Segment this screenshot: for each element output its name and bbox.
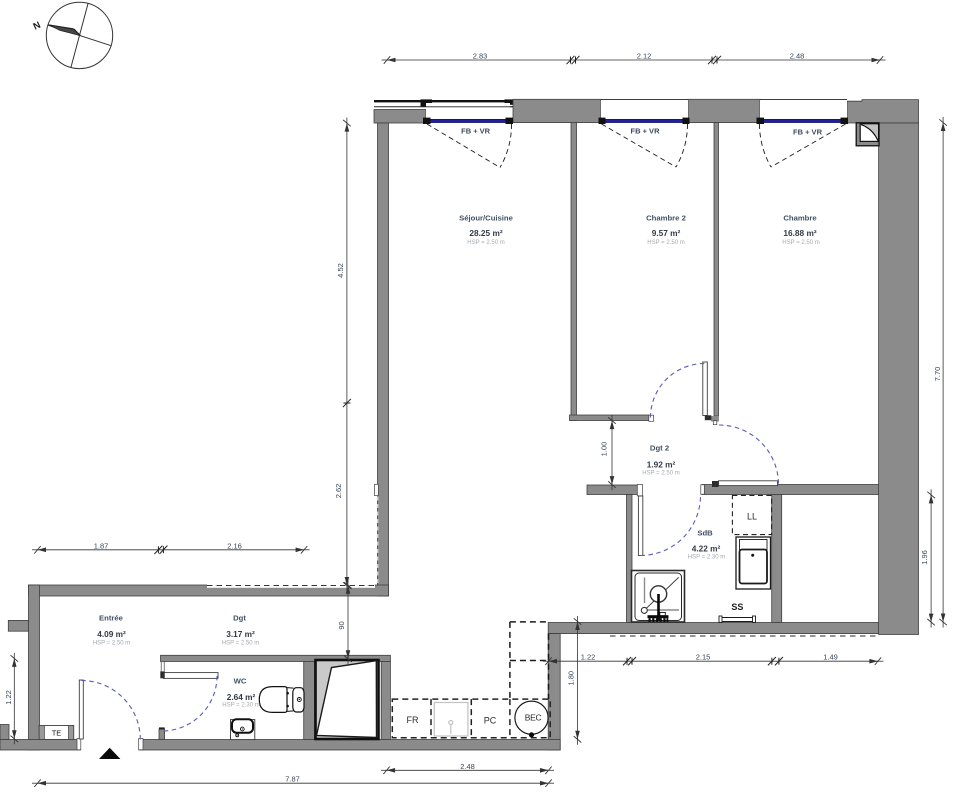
svg-text:Dgt: Dgt (233, 614, 246, 623)
svg-text:HSP = 2.50 m: HSP = 2.50 m (642, 471, 679, 477)
svg-text:LL: LL (747, 512, 757, 522)
svg-text:1.96: 1.96 (920, 550, 929, 565)
svg-text:4.09 m²: 4.09 m² (97, 629, 126, 639)
svg-text:TE: TE (52, 729, 62, 738)
svg-text:Entrée: Entrée (99, 614, 124, 623)
svg-text:FB + VR: FB + VR (793, 128, 823, 137)
svg-text:3.17 m²: 3.17 m² (226, 629, 255, 639)
svg-text:HSP = 2.50 m: HSP = 2.50 m (647, 240, 684, 246)
svg-text:HSP = 2.50 m: HSP = 2.50 m (222, 641, 259, 647)
svg-text:28.25 m²: 28.25 m² (469, 228, 502, 238)
svg-text:1.92 m²: 1.92 m² (647, 460, 676, 470)
svg-text:90: 90 (337, 621, 346, 629)
svg-text:Séjour/Cuisine: Séjour/Cuisine (459, 214, 514, 223)
svg-text:2.83: 2.83 (473, 52, 488, 61)
svg-text:2.15: 2.15 (696, 653, 711, 662)
svg-text:HSP = 2.50 m: HSP = 2.50 m (93, 641, 130, 647)
svg-text:2.16: 2.16 (227, 541, 242, 550)
svg-text:1.22: 1.22 (4, 690, 13, 705)
svg-text:BEC: BEC (525, 713, 542, 723)
svg-text:1.49: 1.49 (823, 653, 838, 662)
svg-text:1.22: 1.22 (581, 653, 596, 662)
svg-text:1.00: 1.00 (599, 442, 608, 457)
svg-text:2.48: 2.48 (790, 52, 805, 61)
svg-text:2.12: 2.12 (637, 52, 652, 61)
svg-text:SS: SS (731, 602, 743, 612)
svg-text:PC: PC (484, 716, 497, 726)
svg-text:1.87: 1.87 (94, 541, 109, 550)
svg-text:HSP = 2.50 m: HSP = 2.50 m (467, 240, 504, 246)
svg-text:7.70: 7.70 (933, 367, 942, 382)
svg-text:HSP = 2.30 m: HSP = 2.30 m (222, 703, 259, 709)
svg-text:7.87: 7.87 (285, 775, 300, 784)
svg-text:HSP = 2.50 m: HSP = 2.50 m (782, 240, 819, 246)
svg-text:Chambre 2: Chambre 2 (646, 214, 686, 223)
svg-text:1.80: 1.80 (567, 671, 576, 686)
svg-text:Dgt 2: Dgt 2 (650, 444, 669, 453)
svg-text:2.48: 2.48 (460, 762, 475, 771)
svg-text:SdB: SdB (697, 529, 713, 538)
svg-text:FB + VR: FB + VR (461, 127, 491, 136)
svg-text:FR: FR (407, 715, 419, 725)
svg-text:9.57 m²: 9.57 m² (652, 228, 681, 238)
svg-text:WC: WC (234, 677, 247, 686)
svg-text:4.52: 4.52 (336, 263, 345, 278)
svg-text:HSP = 2.30 m: HSP = 2.30 m (688, 555, 725, 561)
svg-text:4.22 m²: 4.22 m² (692, 544, 721, 554)
svg-text:16.88 m²: 16.88 m² (783, 228, 816, 238)
svg-text:2.64 m²: 2.64 m² (227, 692, 256, 702)
svg-text:FB + VR: FB + VR (631, 127, 661, 136)
svg-text:2.62: 2.62 (334, 484, 343, 499)
svg-text:Chambre: Chambre (783, 214, 817, 223)
